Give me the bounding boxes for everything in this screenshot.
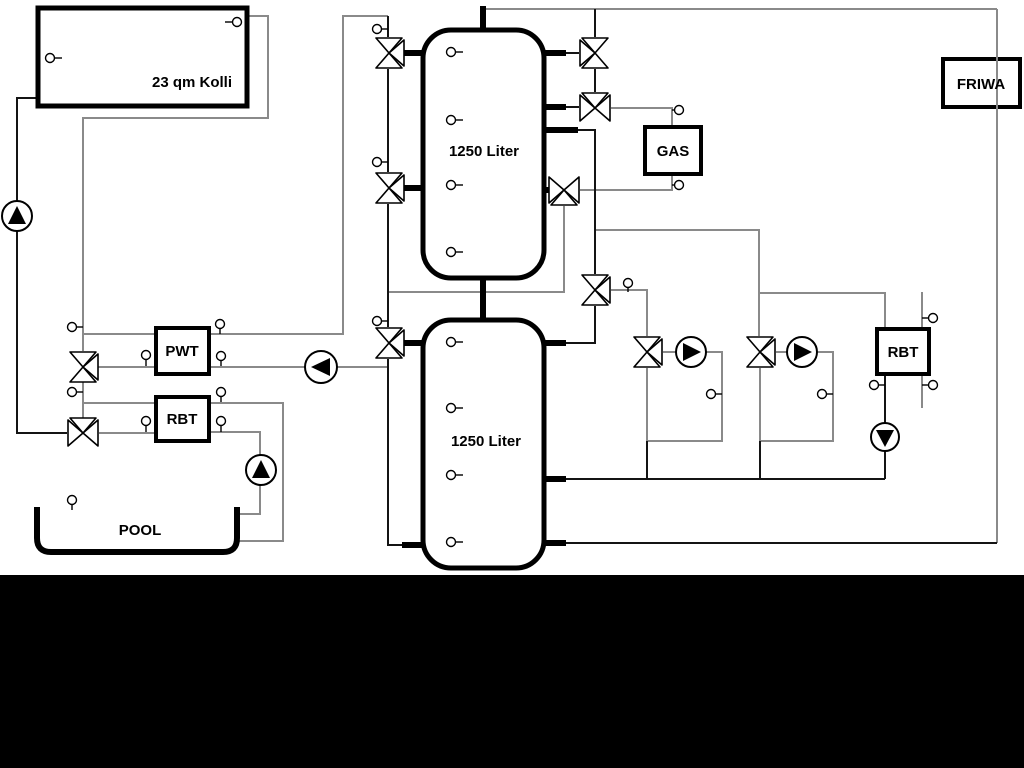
schematic-stage: 23 qm Kolli 1250 Liter 1250 Liter PWT RB… <box>0 0 1024 768</box>
sensor-icon <box>922 381 938 390</box>
friwa-label: FRIWA <box>957 76 1005 93</box>
pool-label: POOL <box>119 522 162 539</box>
sensor-icon <box>373 25 389 34</box>
valve-tank1-top-right-icon <box>580 38 608 68</box>
sensor-icon <box>217 352 226 367</box>
pool-pump-icon <box>246 455 276 485</box>
pwt-charge-pump-icon <box>305 351 337 383</box>
valve-tank1-top-left-icon <box>376 38 404 68</box>
collector-label: 23 qm Kolli <box>152 74 232 91</box>
letterbox-band <box>0 575 1024 768</box>
solar-collector-box <box>38 8 247 106</box>
rbt-right-label: RBT <box>888 344 919 361</box>
tank1-label: 1250 Liter <box>449 143 519 160</box>
valve-circuit1-mixer-icon <box>634 337 662 367</box>
sensor-icon <box>672 181 684 190</box>
sensor-icon <box>68 496 77 511</box>
valve-pool-return-icon <box>68 418 98 446</box>
sensor-icon <box>217 417 226 433</box>
valve-tank1-mid-left-icon <box>376 173 404 203</box>
valve-tank2-top-left-icon <box>376 328 404 358</box>
heating-circuit-1-pump-icon <box>676 337 706 367</box>
sensor-icon <box>216 320 225 335</box>
valve-gas-return-icon <box>549 177 579 205</box>
sensor-icon <box>68 323 84 332</box>
valve-circuit2-mixer-icon <box>747 337 775 367</box>
sensor-icon <box>373 317 389 326</box>
valve-gas-flow-icon <box>580 93 610 121</box>
heating-circuit-2-pump-icon <box>787 337 817 367</box>
rbt-pool-label: RBT <box>167 411 198 428</box>
sensor-icon <box>142 351 151 367</box>
sensor-icon <box>922 314 938 323</box>
sensor-icon <box>672 106 684 115</box>
heating-schematic: 23 qm Kolli 1250 Liter 1250 Liter PWT RB… <box>0 0 1024 768</box>
sensor-icon <box>142 417 151 433</box>
sensor-icon <box>870 381 886 390</box>
valve-pwt-supply-icon <box>70 352 98 382</box>
sensor-icon <box>217 388 226 403</box>
tank2-label: 1250 Liter <box>451 433 521 450</box>
valve-heating-supply-icon <box>582 275 610 305</box>
gas-label: GAS <box>657 143 690 160</box>
sensor-icon <box>68 388 84 397</box>
sensor-icon <box>707 390 723 399</box>
sensor-icon <box>373 158 389 167</box>
solar-pump-icon <box>2 201 32 231</box>
rbt-right-pump-icon <box>871 423 899 451</box>
pwt-label: PWT <box>165 343 198 360</box>
sensor-icon <box>818 390 834 399</box>
